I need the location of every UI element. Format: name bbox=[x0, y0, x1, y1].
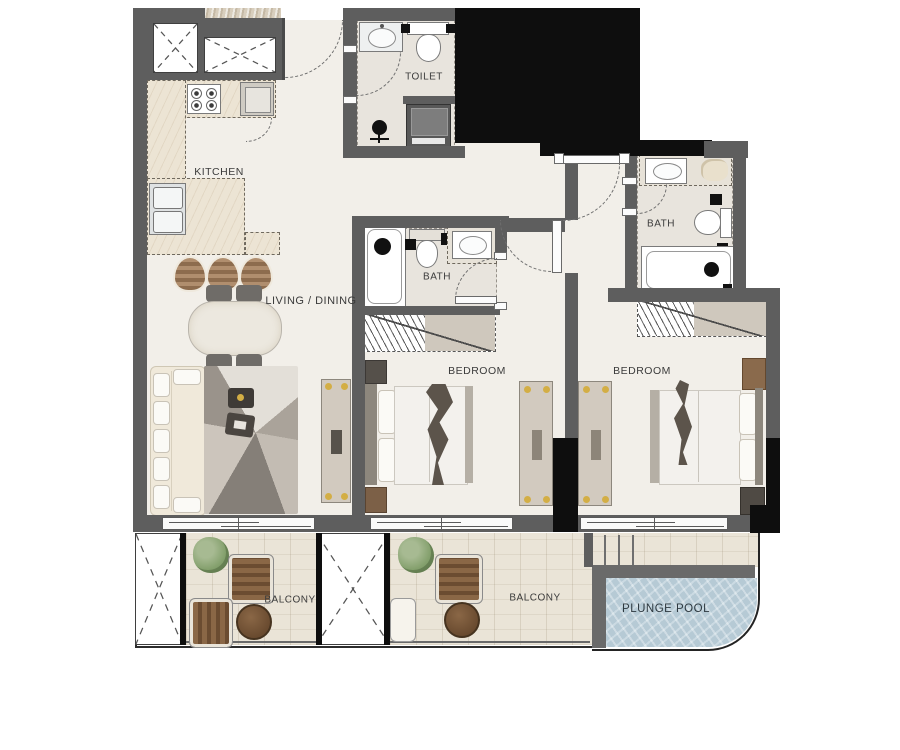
x-mark-icon bbox=[136, 534, 182, 644]
outdoor-table bbox=[444, 602, 480, 638]
coffee-table bbox=[228, 388, 254, 408]
headboard bbox=[365, 384, 377, 485]
outdoor-chair bbox=[390, 598, 416, 642]
wall-black-bottom-right bbox=[750, 505, 780, 533]
wall-toilet-bottom bbox=[343, 146, 465, 158]
core-black-mass bbox=[455, 8, 640, 143]
sliding-door-living bbox=[162, 517, 315, 530]
column-between-bedrooms bbox=[553, 438, 578, 532]
sink-bowl bbox=[653, 163, 682, 180]
towel bbox=[701, 159, 728, 181]
bed-1 bbox=[365, 384, 473, 485]
tap-icon bbox=[380, 24, 384, 28]
toilet-bowl bbox=[416, 34, 441, 62]
void-side-wall bbox=[316, 533, 322, 645]
gold-bowl bbox=[237, 394, 244, 401]
tv bbox=[532, 430, 542, 460]
glazing-mullion bbox=[441, 518, 442, 531]
console-accent bbox=[583, 496, 590, 503]
washing-machine bbox=[406, 104, 451, 149]
tv bbox=[331, 430, 342, 454]
shaft-void bbox=[153, 23, 198, 73]
bedroom-1-door-leaf bbox=[552, 220, 562, 273]
sink-basin bbox=[153, 211, 183, 233]
console-accent bbox=[583, 386, 590, 393]
tv-console-living bbox=[321, 379, 351, 503]
console-accent bbox=[524, 386, 531, 393]
wardrobe-bedroom-2 bbox=[637, 299, 767, 337]
wall-toilet-top bbox=[343, 8, 465, 21]
hall-door-leaf bbox=[563, 155, 620, 164]
potted-plant bbox=[193, 537, 229, 573]
wardrobe-diagonal bbox=[638, 300, 767, 337]
burner-icon bbox=[191, 88, 202, 99]
bathtub-2 bbox=[641, 246, 734, 292]
sofa-pillow bbox=[153, 429, 170, 453]
pool-wall-top bbox=[592, 565, 755, 578]
wall-toilet-divider bbox=[403, 96, 455, 104]
sofa bbox=[150, 366, 206, 516]
headboard bbox=[755, 388, 763, 485]
sliding-door-bedroom-2 bbox=[580, 517, 728, 530]
sofa-seat-line bbox=[171, 371, 172, 511]
toilet-fixture bbox=[409, 229, 445, 271]
dining-table bbox=[188, 301, 282, 356]
door-jamb bbox=[343, 45, 357, 53]
console-accent bbox=[543, 386, 550, 393]
wardrobe-bedroom-1 bbox=[362, 312, 496, 352]
shower-stand bbox=[378, 133, 380, 143]
tub-faucet bbox=[704, 262, 719, 277]
cistern bbox=[720, 208, 732, 238]
tv bbox=[591, 430, 601, 460]
pool-wall-left bbox=[592, 565, 606, 648]
wall-bath-1-top bbox=[352, 216, 509, 228]
dining-chair bbox=[236, 285, 262, 302]
deck-edge-stub bbox=[584, 533, 593, 567]
coffee-table bbox=[225, 412, 256, 438]
room-label-balcony-1: BALCONY bbox=[264, 595, 315, 606]
shaft-void bbox=[204, 37, 276, 73]
wall-bath-1-bottom bbox=[352, 306, 500, 315]
room-label-bath-2: BATH bbox=[647, 219, 675, 230]
room-label-bedroom-1: BEDROOM bbox=[448, 365, 506, 377]
door-jamb bbox=[622, 177, 637, 185]
outdoor-chair bbox=[436, 555, 482, 603]
nightstand bbox=[365, 487, 387, 513]
wall-bedroom-2-top bbox=[608, 288, 780, 302]
sofa-pillow bbox=[153, 401, 170, 425]
toilet-fixture bbox=[694, 206, 732, 240]
flush-plate bbox=[710, 194, 722, 205]
bath-1-sink bbox=[452, 231, 492, 259]
sofa-pillow bbox=[153, 485, 170, 509]
void-side-wall bbox=[180, 533, 186, 645]
toilet-fixture bbox=[407, 22, 449, 64]
wall-between-bedrooms-lower bbox=[565, 273, 578, 440]
x-mark-icon bbox=[154, 24, 197, 72]
duvet-seam bbox=[698, 391, 699, 482]
x-mark-icon bbox=[317, 534, 389, 644]
sink-basin bbox=[153, 187, 183, 209]
glazing-mullion bbox=[654, 518, 655, 531]
sofa-pillow bbox=[153, 373, 170, 397]
vanity-counter-2 bbox=[639, 154, 732, 186]
x-mark-icon bbox=[205, 38, 275, 72]
console-accent bbox=[341, 493, 348, 500]
room-label-plunge-pool: PLUNGE POOL bbox=[622, 603, 710, 615]
room-label-bath-1: BATH bbox=[423, 272, 451, 283]
nightstand bbox=[742, 358, 766, 390]
room-label-living-dining: LIVING / DINING bbox=[265, 295, 356, 307]
sink-bowl bbox=[459, 236, 487, 255]
flush-plate bbox=[405, 239, 416, 250]
room-label-toilet: TOILET bbox=[405, 72, 443, 83]
glazing-mullion bbox=[238, 518, 239, 531]
pool-deck bbox=[592, 533, 758, 567]
sliding-door-bedroom-1 bbox=[370, 517, 513, 530]
glazing-line bbox=[221, 526, 311, 527]
console-accent bbox=[602, 496, 609, 503]
console-accent bbox=[325, 383, 332, 390]
tv-console-bedroom-1 bbox=[519, 381, 553, 506]
burner-icon bbox=[191, 100, 202, 111]
glazing-line bbox=[377, 522, 461, 523]
foot-bench bbox=[465, 386, 473, 483]
glazing-line bbox=[424, 526, 508, 527]
console-accent bbox=[325, 493, 332, 500]
wall-right-outer bbox=[766, 295, 780, 438]
stove bbox=[187, 84, 221, 114]
wall-living-bedroom-1 bbox=[352, 216, 365, 517]
foot-bench bbox=[650, 390, 659, 483]
wall-left-outer bbox=[133, 8, 147, 532]
washer-panel bbox=[412, 138, 445, 144]
wardrobe-diagonal bbox=[363, 313, 496, 352]
console-accent bbox=[524, 496, 531, 503]
bar-stool bbox=[173, 256, 207, 292]
sink-bowl bbox=[368, 28, 396, 48]
door-jamb bbox=[619, 153, 630, 164]
table-decor bbox=[234, 420, 247, 430]
outdoor-table bbox=[236, 604, 272, 640]
door-jamb bbox=[343, 96, 357, 104]
wall-toilet-left bbox=[343, 8, 357, 156]
glazing-line bbox=[636, 526, 724, 527]
door-jamb bbox=[622, 208, 637, 216]
toilet-bowl bbox=[416, 240, 438, 268]
room-label-kitchen: KITCHEN bbox=[194, 166, 244, 178]
outdoor-chair bbox=[190, 599, 232, 647]
bathtub-1 bbox=[362, 224, 406, 308]
glazing-line bbox=[587, 522, 675, 523]
balcony-void bbox=[135, 533, 183, 645]
tv-console-bedroom-2 bbox=[578, 381, 612, 506]
glazing-line bbox=[169, 522, 259, 523]
sofa-pillow bbox=[173, 369, 201, 385]
toilet-bowl bbox=[694, 210, 721, 235]
flush-plate bbox=[446, 24, 455, 33]
dining-chair bbox=[206, 285, 232, 302]
sofa-pillow bbox=[153, 457, 170, 481]
flush-plate bbox=[401, 24, 410, 33]
room-label-bedroom-2: BEDROOM bbox=[613, 365, 671, 377]
floor-plan: KITCHEN TOILET LIVING / DINING BATH BATH… bbox=[0, 0, 900, 750]
burner-icon bbox=[206, 88, 217, 99]
toilet-room-sink bbox=[359, 22, 403, 52]
bath-2-sink bbox=[645, 158, 687, 184]
pool-step-line bbox=[618, 535, 620, 565]
balcony-void bbox=[316, 533, 390, 645]
console-accent bbox=[602, 386, 609, 393]
sofa-pillow bbox=[173, 497, 201, 513]
console-accent bbox=[341, 383, 348, 390]
oven-door bbox=[245, 87, 271, 113]
oven bbox=[240, 82, 274, 116]
pool-step-line bbox=[604, 535, 606, 565]
console-accent bbox=[543, 496, 550, 503]
mattress bbox=[659, 390, 741, 485]
kitchen-island-extension bbox=[245, 232, 280, 255]
bed-2 bbox=[650, 388, 763, 485]
pool-step-line bbox=[632, 535, 634, 565]
washer-lid bbox=[411, 108, 448, 136]
room-label-balcony-2: BALCONY bbox=[509, 593, 560, 604]
wall-bath-2-right bbox=[733, 150, 746, 295]
burner-icon bbox=[206, 100, 217, 111]
nightstand bbox=[365, 360, 387, 384]
shower-head bbox=[374, 238, 391, 255]
kitchen-sink bbox=[149, 183, 186, 235]
potted-plant bbox=[398, 537, 434, 573]
